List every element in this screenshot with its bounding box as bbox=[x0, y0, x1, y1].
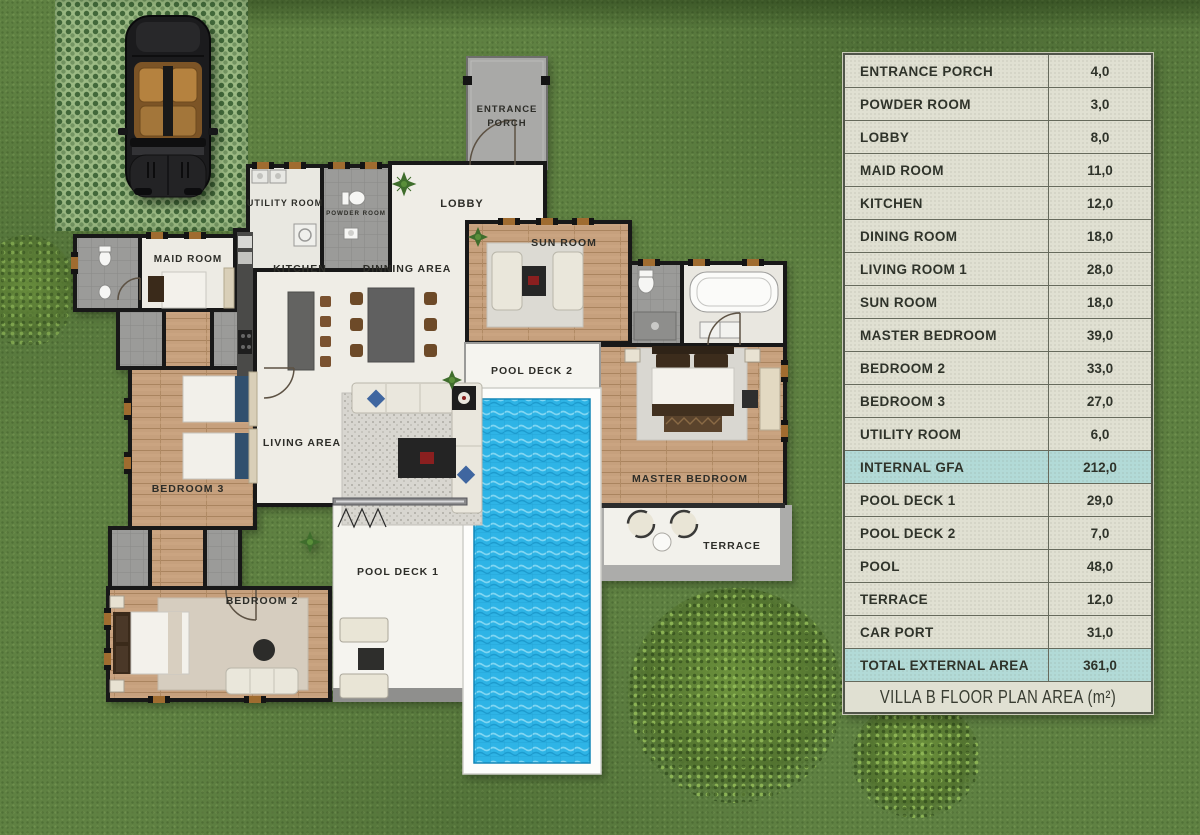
window-marker bbox=[503, 218, 515, 225]
window-marker bbox=[257, 162, 269, 169]
table-row: KITCHEN 12,0 bbox=[845, 187, 1151, 220]
window-marker bbox=[781, 360, 788, 365]
sun-room-label: SUN ROOM bbox=[531, 237, 597, 249]
table-row: BEDROOM 2 33,0 bbox=[845, 352, 1151, 385]
window-marker bbox=[781, 437, 788, 442]
window-marker bbox=[365, 162, 377, 169]
window-marker bbox=[71, 257, 78, 269]
window-marker bbox=[153, 696, 165, 703]
area-table-footer: VILLA B FLOOR PLAN AREA (m²) bbox=[845, 682, 1151, 712]
table-row-value: 212,0 bbox=[1049, 451, 1151, 483]
window-marker bbox=[553, 218, 558, 225]
window-marker bbox=[655, 259, 660, 266]
table-row-value: 4,0 bbox=[1049, 55, 1151, 87]
window-marker bbox=[124, 398, 131, 403]
window-marker bbox=[124, 403, 131, 415]
window-marker bbox=[124, 452, 131, 457]
kitchen-label: KITCHEN bbox=[273, 263, 327, 275]
table-row: POOL 48,0 bbox=[845, 550, 1151, 583]
bedroom-2-label: BEDROOM 2 bbox=[226, 595, 299, 607]
window-marker bbox=[360, 162, 365, 169]
table-row-label: LOBBY bbox=[845, 121, 1049, 153]
window-marker bbox=[572, 218, 577, 225]
window-marker bbox=[781, 365, 788, 377]
table-row-label: SUN ROOM bbox=[845, 286, 1049, 318]
window-marker bbox=[252, 162, 257, 169]
table-row-label: KITCHEN bbox=[845, 187, 1049, 219]
table-row-label: POWDER ROOM bbox=[845, 88, 1049, 120]
window-marker bbox=[269, 162, 274, 169]
pool-deck-2-label: POOL DECK 2 bbox=[491, 365, 573, 377]
window-marker bbox=[165, 696, 170, 703]
room-bath3 bbox=[118, 310, 164, 368]
window-marker bbox=[643, 259, 655, 266]
table-row-value: 48,0 bbox=[1049, 550, 1151, 582]
window-marker bbox=[261, 696, 266, 703]
table-row-value: 28,0 bbox=[1049, 253, 1151, 285]
window-marker bbox=[71, 252, 78, 257]
window-marker bbox=[124, 457, 131, 469]
floor-plan-title: VILLA B FLOOR PLAN AREA (m²) bbox=[880, 687, 1116, 708]
table-row-value: 29,0 bbox=[1049, 484, 1151, 516]
powder-room-label: POWDER ROOM bbox=[326, 210, 386, 217]
window-marker bbox=[498, 218, 503, 225]
table-row: TERRACE 12,0 bbox=[845, 583, 1151, 616]
table-row: DINING ROOM 18,0 bbox=[845, 220, 1151, 253]
car bbox=[118, 10, 218, 205]
hall-corridor2 bbox=[150, 528, 205, 590]
maid-room-label: MAID ROOM bbox=[154, 254, 222, 265]
window-marker bbox=[104, 665, 111, 670]
table-row: TOTAL EXTERNAL AREA 361,0 bbox=[845, 649, 1151, 682]
table-row: MAID ROOM 11,0 bbox=[845, 154, 1151, 187]
window-marker bbox=[515, 218, 520, 225]
table-row-label: DINING ROOM bbox=[845, 220, 1049, 252]
window-marker bbox=[345, 162, 350, 169]
table-row-value: 7,0 bbox=[1049, 517, 1151, 549]
entrance-porch-label2: PORCH bbox=[487, 118, 526, 129]
table-row: MASTER BEDROOM 39,0 bbox=[845, 319, 1151, 352]
pool-deck-1-label: POOL DECK 1 bbox=[357, 566, 439, 578]
table-row-label: POOL DECK 2 bbox=[845, 517, 1049, 549]
window-marker bbox=[781, 420, 788, 425]
window-marker bbox=[184, 232, 189, 239]
pool bbox=[463, 388, 601, 774]
table-row-label: TERRACE bbox=[845, 583, 1049, 615]
table-row: INTERNAL GFA 212,0 bbox=[845, 451, 1151, 484]
table-row-label: MAID ROOM bbox=[845, 154, 1049, 186]
hall-corridor bbox=[164, 310, 212, 368]
area-table: ENTRANCE PORCH 4,0 POWDER ROOM 3,0 LOBBY… bbox=[843, 53, 1153, 714]
table-row: POWDER ROOM 3,0 bbox=[845, 88, 1151, 121]
table-row-value: 39,0 bbox=[1049, 319, 1151, 351]
window-marker bbox=[301, 162, 306, 169]
table-row: LIVING ROOM 1 28,0 bbox=[845, 253, 1151, 286]
table-row-label: UTILITY ROOM bbox=[845, 418, 1049, 450]
window-marker bbox=[328, 162, 333, 169]
table-row-label: POOL bbox=[845, 550, 1049, 582]
table-row-label: LIVING ROOM 1 bbox=[845, 253, 1049, 285]
table-row: POOL DECK 1 29,0 bbox=[845, 484, 1151, 517]
window-marker bbox=[577, 218, 589, 225]
window-marker bbox=[638, 259, 643, 266]
terrace-label: TERRACE bbox=[703, 540, 761, 552]
window-marker bbox=[289, 162, 301, 169]
table-row-value: 31,0 bbox=[1049, 616, 1151, 648]
window-marker bbox=[148, 696, 153, 703]
table-row-value: 27,0 bbox=[1049, 385, 1151, 417]
window-marker bbox=[333, 162, 345, 169]
window-marker bbox=[589, 218, 594, 225]
window-marker bbox=[124, 415, 131, 420]
window-marker bbox=[781, 377, 788, 382]
window-marker bbox=[284, 162, 289, 169]
window-marker bbox=[377, 162, 382, 169]
window-marker bbox=[104, 608, 111, 613]
window-marker bbox=[104, 648, 111, 653]
window-marker bbox=[541, 218, 553, 225]
table-row-value: 18,0 bbox=[1049, 220, 1151, 252]
table-row-label: TOTAL EXTERNAL AREA bbox=[845, 649, 1049, 681]
table-row: POOL DECK 2 7,0 bbox=[845, 517, 1151, 550]
window-marker bbox=[693, 259, 705, 266]
window-marker bbox=[104, 625, 111, 630]
scene: { "colors":{ "grass":"#5f8142","paver_li… bbox=[0, 0, 1200, 835]
room-shower2 bbox=[205, 528, 240, 590]
table-row: BEDROOM 3 27,0 bbox=[845, 385, 1151, 418]
table-row: CAR PORT 31,0 bbox=[845, 616, 1151, 649]
table-row-value: 8,0 bbox=[1049, 121, 1151, 153]
window-marker bbox=[688, 259, 693, 266]
window-marker bbox=[124, 469, 131, 474]
bedroom-3-label: BEDROOM 3 bbox=[152, 483, 225, 495]
area-table-rows: ENTRANCE PORCH 4,0 POWDER ROOM 3,0 LOBBY… bbox=[845, 55, 1151, 682]
table-row-value: 12,0 bbox=[1049, 187, 1151, 219]
entrance-porch-label: ENTRANCE bbox=[477, 104, 538, 115]
window-marker bbox=[781, 425, 788, 437]
table-row: ENTRANCE PORCH 4,0 bbox=[845, 55, 1151, 88]
table-row-label: MASTER BEDROOM bbox=[845, 319, 1049, 351]
room-powder bbox=[322, 166, 390, 270]
room-pooldeck1 bbox=[333, 500, 467, 690]
room-bath2 bbox=[110, 528, 150, 590]
living-area-label: LIVING AREA bbox=[263, 437, 341, 449]
table-row-value: 33,0 bbox=[1049, 352, 1151, 384]
window-marker bbox=[71, 269, 78, 274]
table-row-label: POOL DECK 1 bbox=[845, 484, 1049, 516]
window-marker bbox=[104, 653, 111, 665]
window-marker bbox=[759, 259, 764, 266]
porch-post bbox=[541, 76, 550, 85]
dinning-area-label: DINNING AREA bbox=[363, 263, 452, 275]
table-row-value: 6,0 bbox=[1049, 418, 1151, 450]
window-marker bbox=[536, 218, 541, 225]
table-row-value: 11,0 bbox=[1049, 154, 1151, 186]
master-bedroom-label: MASTER BEDROOM bbox=[632, 473, 748, 485]
window-marker bbox=[747, 259, 759, 266]
table-row: SUN ROOM 18,0 bbox=[845, 286, 1151, 319]
table-row-label: BEDROOM 3 bbox=[845, 385, 1049, 417]
sunroom-set bbox=[487, 243, 583, 327]
window-marker bbox=[151, 232, 163, 239]
window-marker bbox=[244, 696, 249, 703]
table-row-label: BEDROOM 2 bbox=[845, 352, 1049, 384]
lobby-label: LOBBY bbox=[440, 198, 484, 210]
window-marker bbox=[249, 696, 261, 703]
table-row: LOBBY 8,0 bbox=[845, 121, 1151, 154]
table-row: UTILITY ROOM 6,0 bbox=[845, 418, 1151, 451]
table-row-label: ENTRANCE PORCH bbox=[845, 55, 1049, 87]
window-marker bbox=[163, 232, 168, 239]
porch-post bbox=[463, 76, 472, 85]
window-marker bbox=[742, 259, 747, 266]
utility-room-label: UTILITY ROOM bbox=[247, 198, 323, 208]
window-marker bbox=[201, 232, 206, 239]
bush-patch bbox=[852, 700, 980, 818]
table-row-value: 18,0 bbox=[1049, 286, 1151, 318]
table-row-value: 12,0 bbox=[1049, 583, 1151, 615]
table-row-label: CAR PORT bbox=[845, 616, 1049, 648]
window-marker bbox=[146, 232, 151, 239]
table-row-value: 361,0 bbox=[1049, 649, 1151, 681]
table-row-value: 3,0 bbox=[1049, 88, 1151, 120]
window-marker bbox=[705, 259, 710, 266]
window-marker bbox=[104, 613, 111, 625]
window-marker bbox=[189, 232, 201, 239]
table-row-label: INTERNAL GFA bbox=[845, 451, 1049, 483]
